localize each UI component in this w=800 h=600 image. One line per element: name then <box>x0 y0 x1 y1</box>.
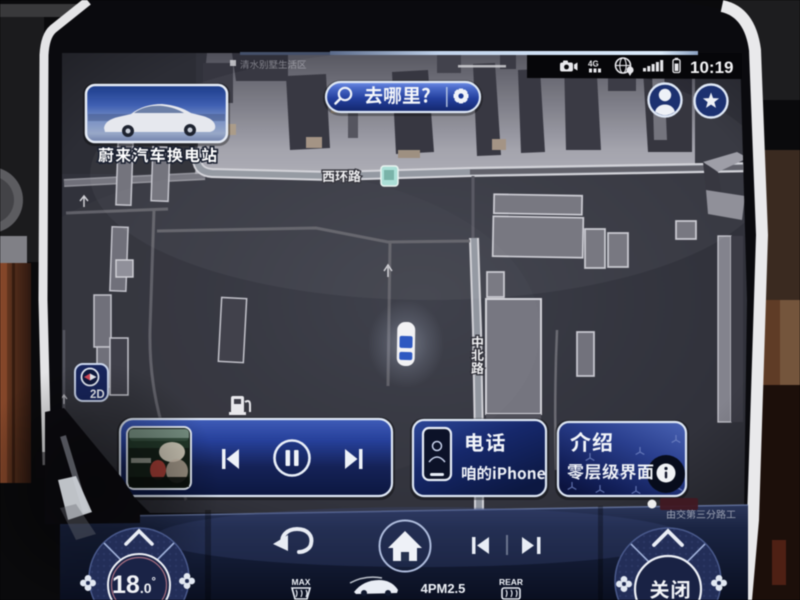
svg-text:4G: 4G <box>588 60 599 69</box>
svg-text:MAX: MAX <box>292 577 311 587</box>
svg-text:10:19: 10:19 <box>690 58 733 77</box>
svg-text:REAR: REAR <box>499 577 523 587</box>
svg-text:4PM2.5: 4PM2.5 <box>421 581 466 596</box>
